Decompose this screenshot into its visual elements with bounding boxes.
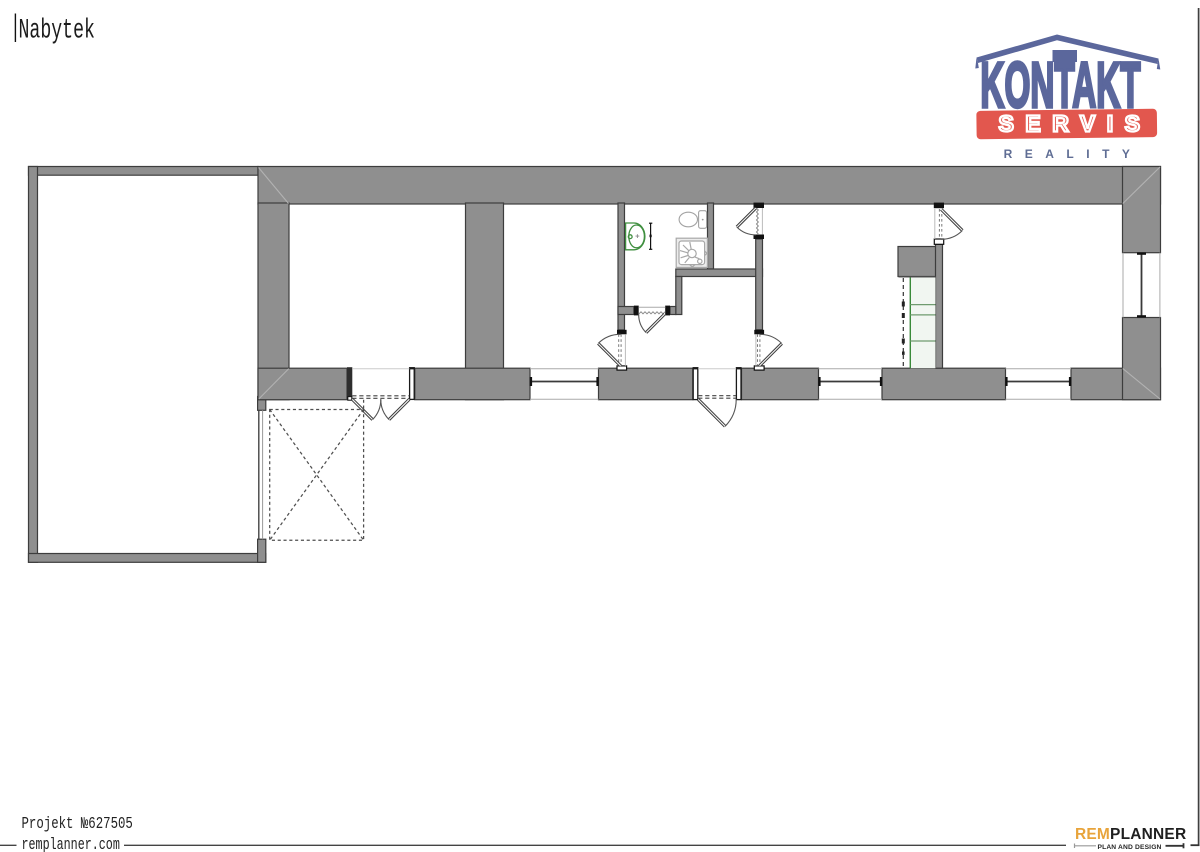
svg-text:REMPLANNER: REMPLANNER [1075, 826, 1186, 843]
svg-text:SERVIS: SERVIS [999, 111, 1152, 137]
svg-text:PLAN AND DESIGN: PLAN AND DESIGN [1097, 844, 1161, 851]
svg-text:remplanner.com: remplanner.com [22, 836, 120, 852]
svg-text:Projekt №627505: Projekt №627505 [22, 816, 133, 834]
svg-text:Nabytek: Nabytek [19, 15, 95, 47]
svg-text:REALITY: REALITY [1004, 147, 1143, 161]
